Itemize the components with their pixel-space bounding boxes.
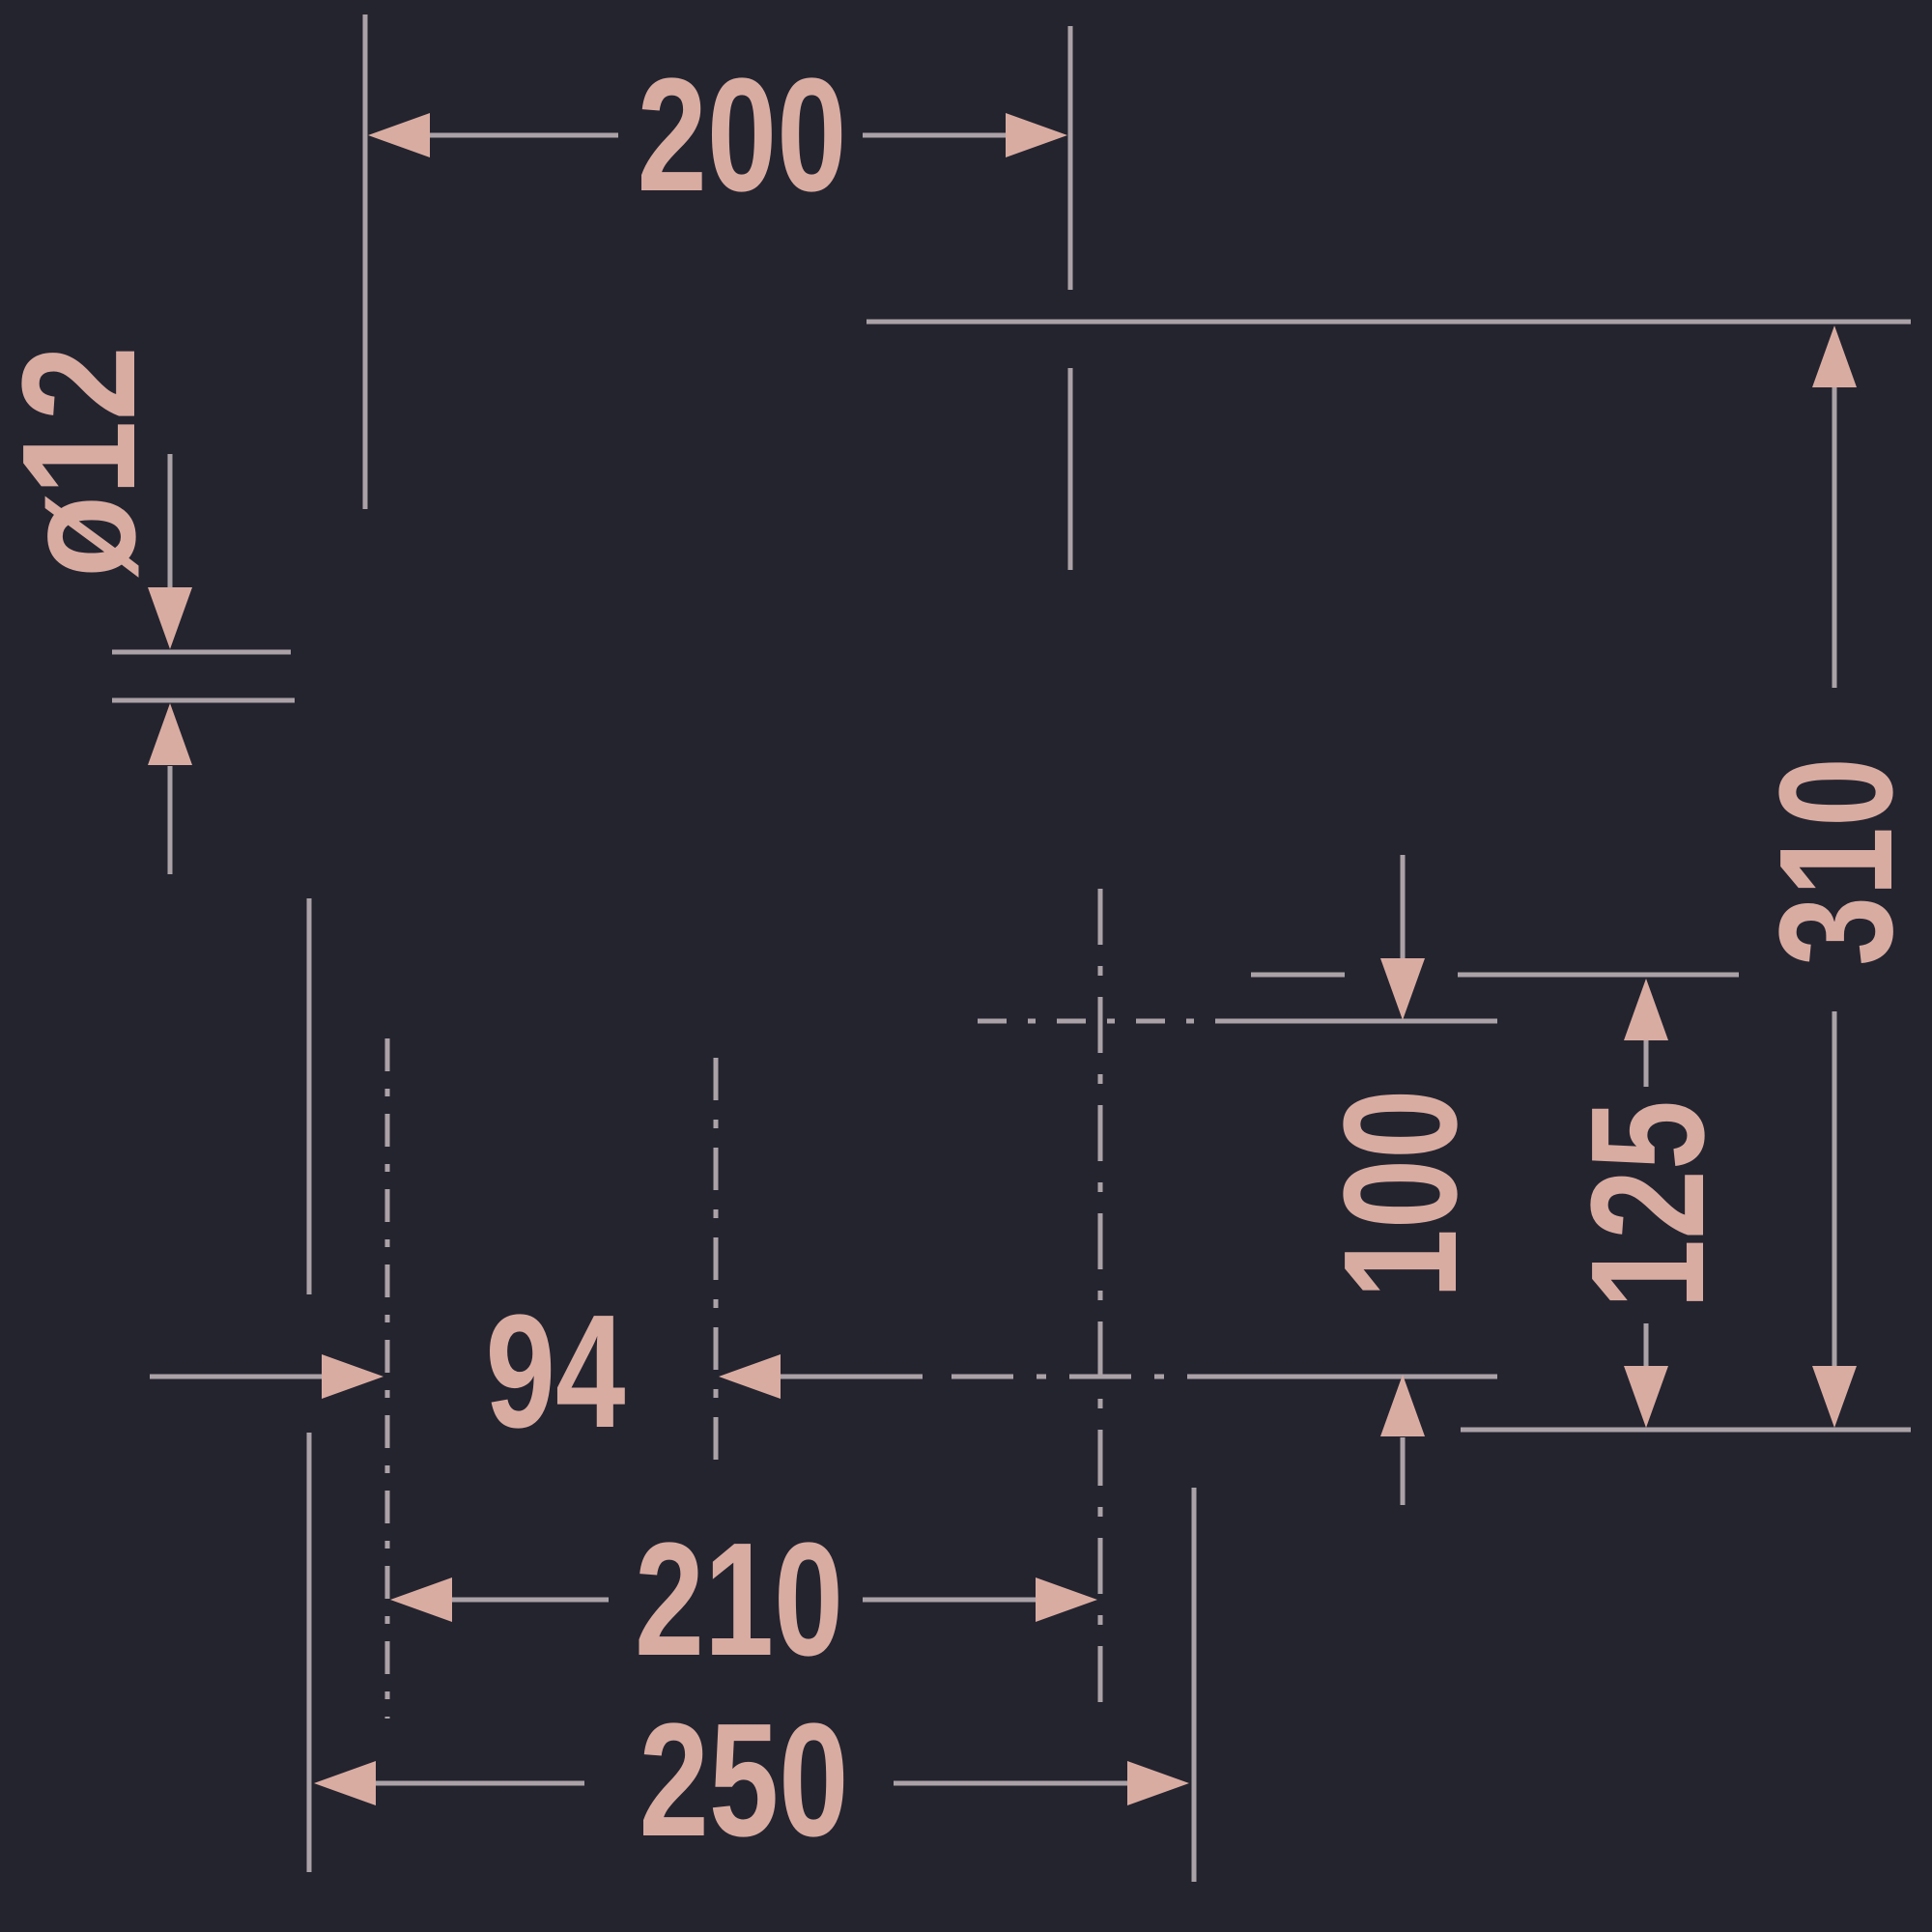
arrowhead-310-up <box>1812 326 1857 387</box>
arrowhead-210-left <box>390 1577 452 1622</box>
arrowhead-diameter-up <box>148 703 192 765</box>
arrowhead-100-down <box>1380 958 1425 1020</box>
dimension-diagram: 200ø1231010012594210250 <box>0 0 1932 1932</box>
dimension-label-250: 250 <box>639 1690 849 1870</box>
arrowhead-94-left <box>719 1354 781 1399</box>
dimension-label-210: 210 <box>635 1510 843 1690</box>
dimension-label-diameter-12: ø12 <box>0 346 169 578</box>
arrowhead-100-up <box>1380 1375 1425 1436</box>
arrowhead-94-right <box>322 1354 384 1399</box>
technical-drawing-canvas: 200ø1231010012594210250 <box>0 0 1932 1932</box>
dimension-label-310: 310 <box>1747 757 1926 966</box>
arrowhead-200-left <box>368 113 430 157</box>
arrowhead-250-right <box>1127 1761 1189 1805</box>
arrowhead-200-right <box>1006 113 1067 157</box>
dimension-label-200: 200 <box>638 45 847 225</box>
arrowhead-125-down <box>1624 1366 1668 1428</box>
arrowhead-125-up <box>1624 979 1668 1040</box>
dimension-label-125: 125 <box>1558 1100 1738 1309</box>
arrowhead-210-right <box>1036 1577 1097 1622</box>
arrowhead-310-down <box>1812 1366 1857 1428</box>
dimension-label-100: 100 <box>1311 1090 1491 1299</box>
arrowhead-diameter-down <box>148 587 192 649</box>
arrowhead-250-left <box>314 1761 376 1805</box>
dimension-label-94: 94 <box>486 1282 626 1462</box>
